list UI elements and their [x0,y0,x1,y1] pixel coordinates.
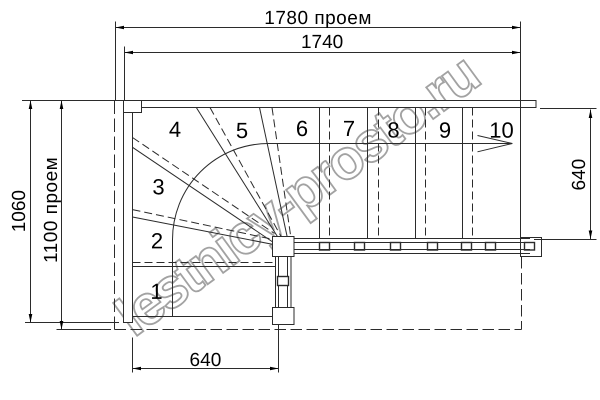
svg-text:7: 7 [343,116,355,141]
svg-text:9: 9 [439,118,451,143]
svg-text:1740: 1740 [301,32,343,53]
svg-text:8: 8 [387,118,399,143]
svg-text:1100 проем: 1100 проем [41,157,62,263]
svg-text:640: 640 [569,159,590,191]
svg-text:3: 3 [152,174,164,199]
svg-text:10: 10 [489,118,513,143]
svg-text:1780 проем: 1780 проем [264,8,372,29]
svg-text:2: 2 [151,228,163,253]
svg-text:5: 5 [236,118,248,143]
svg-text:1060: 1060 [9,190,30,232]
svg-text:640: 640 [190,350,222,371]
svg-text:4: 4 [169,117,181,142]
svg-text:6: 6 [296,116,308,141]
svg-text:1: 1 [150,279,162,304]
